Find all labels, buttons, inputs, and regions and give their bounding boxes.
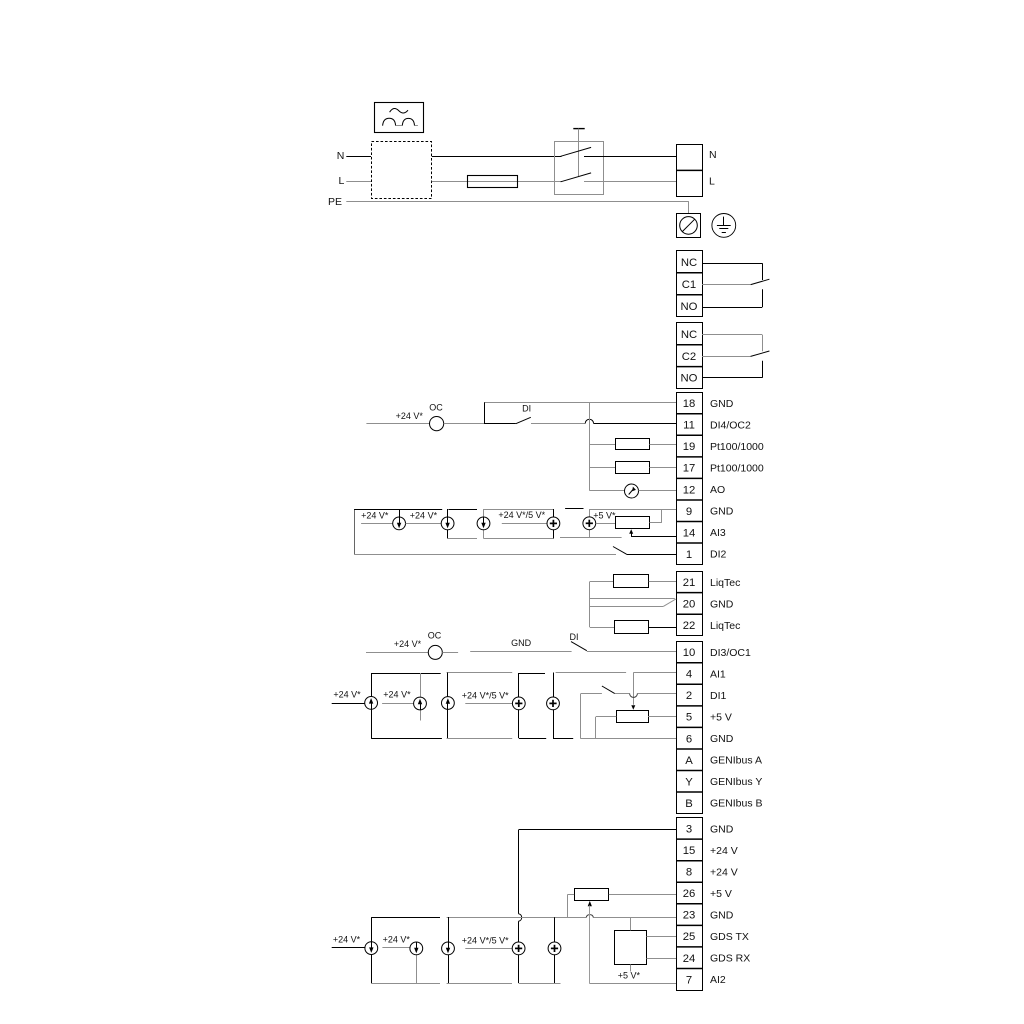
svg-text:AI1: AI1	[710, 668, 726, 680]
svg-text:NC: NC	[681, 257, 697, 269]
svg-text:6: 6	[686, 733, 692, 745]
svg-text:10: 10	[683, 647, 696, 659]
svg-text:2: 2	[686, 690, 692, 702]
svg-text:+5 V: +5 V	[710, 888, 732, 900]
svg-text:+24 V*/5 V*: +24 V*/5 V*	[462, 691, 509, 701]
svg-text:B: B	[685, 798, 693, 810]
svg-text:22: 22	[683, 620, 696, 632]
svg-text:21: 21	[683, 577, 696, 589]
svg-text:+5 V: +5 V	[710, 712, 732, 724]
svg-text:GENIbus Y: GENIbus Y	[710, 776, 762, 788]
svg-text:NO: NO	[681, 301, 698, 313]
svg-text:GND: GND	[710, 398, 734, 410]
svg-text:+24 V*/5 V*: +24 V*/5 V*	[462, 936, 509, 946]
svg-text:1: 1	[686, 549, 692, 561]
svg-text:NO: NO	[681, 373, 698, 385]
svg-text:N: N	[337, 150, 345, 162]
svg-text:GND: GND	[710, 823, 734, 835]
svg-text:C1: C1	[682, 279, 696, 291]
svg-text:+24 V: +24 V	[710, 845, 738, 857]
svg-text:C2: C2	[682, 351, 696, 363]
svg-text:OC: OC	[428, 631, 442, 641]
svg-text:+24 V*: +24 V*	[396, 411, 424, 421]
svg-text:12: 12	[683, 484, 696, 496]
svg-text:4: 4	[686, 669, 692, 681]
svg-text:DI2: DI2	[710, 549, 727, 561]
svg-text:20: 20	[683, 599, 696, 611]
svg-text:DI: DI	[570, 632, 579, 642]
svg-text:3: 3	[686, 824, 692, 836]
svg-text:AI2: AI2	[710, 974, 726, 986]
svg-text:+24 V*: +24 V*	[333, 935, 361, 945]
svg-text:GND: GND	[710, 910, 734, 922]
svg-text:7: 7	[686, 974, 692, 986]
svg-text:+24 V*: +24 V*	[361, 511, 389, 521]
svg-text:GENIbus B: GENIbus B	[710, 798, 763, 810]
svg-text:+24 V*/5 V*: +24 V*/5 V*	[498, 510, 545, 520]
svg-text:GENIbus A: GENIbus A	[710, 755, 762, 767]
svg-text:GDS RX: GDS RX	[710, 953, 750, 965]
svg-text:Pt100/1000: Pt100/1000	[710, 463, 764, 475]
svg-text:14: 14	[683, 527, 696, 539]
svg-text:24: 24	[683, 953, 696, 965]
svg-text:GND: GND	[511, 638, 531, 648]
svg-text:18: 18	[683, 398, 696, 410]
svg-text:LiqTec: LiqTec	[710, 577, 740, 589]
svg-text:Y: Y	[685, 776, 693, 788]
svg-text:DI1: DI1	[710, 690, 727, 702]
svg-text:PE: PE	[328, 196, 342, 208]
svg-text:17: 17	[683, 463, 696, 475]
svg-text:+24 V: +24 V	[710, 866, 738, 878]
svg-text:15: 15	[683, 845, 696, 857]
svg-text:8: 8	[686, 867, 692, 879]
svg-text:LiqTec: LiqTec	[710, 620, 740, 632]
svg-text:+24 V*: +24 V*	[410, 511, 438, 521]
svg-text:N: N	[709, 149, 717, 161]
svg-text:DI3/OC1: DI3/OC1	[710, 647, 751, 659]
svg-text:GND: GND	[710, 733, 734, 745]
svg-text:A: A	[685, 755, 693, 767]
svg-text:AI3: AI3	[710, 527, 726, 539]
svg-text:+24 V*: +24 V*	[383, 935, 411, 945]
svg-text:+5 V*: +5 V*	[618, 971, 641, 981]
svg-text:DI4/OC2: DI4/OC2	[710, 419, 751, 431]
svg-text:Pt100/1000: Pt100/1000	[710, 441, 764, 453]
svg-text:+5 V*: +5 V*	[593, 510, 616, 520]
svg-text:AO: AO	[710, 484, 725, 496]
svg-text:NC: NC	[681, 329, 697, 341]
svg-text:GND: GND	[710, 598, 734, 610]
svg-text:OC: OC	[429, 403, 443, 413]
svg-text:5: 5	[686, 712, 692, 724]
svg-text:+24 V*: +24 V*	[383, 690, 411, 700]
svg-text:+24 V*: +24 V*	[394, 639, 422, 649]
svg-text:DI: DI	[522, 404, 531, 414]
svg-text:L: L	[709, 176, 715, 188]
svg-text:9: 9	[686, 506, 692, 518]
svg-text:GDS TX: GDS TX	[710, 931, 749, 943]
svg-text:26: 26	[683, 888, 696, 900]
svg-text:+24 V*: +24 V*	[333, 690, 361, 700]
svg-text:GND: GND	[710, 506, 734, 518]
svg-text:25: 25	[683, 931, 696, 943]
svg-text:23: 23	[683, 910, 696, 922]
svg-text:11: 11	[683, 420, 695, 432]
svg-text:L: L	[339, 175, 345, 187]
svg-text:19: 19	[683, 441, 696, 453]
